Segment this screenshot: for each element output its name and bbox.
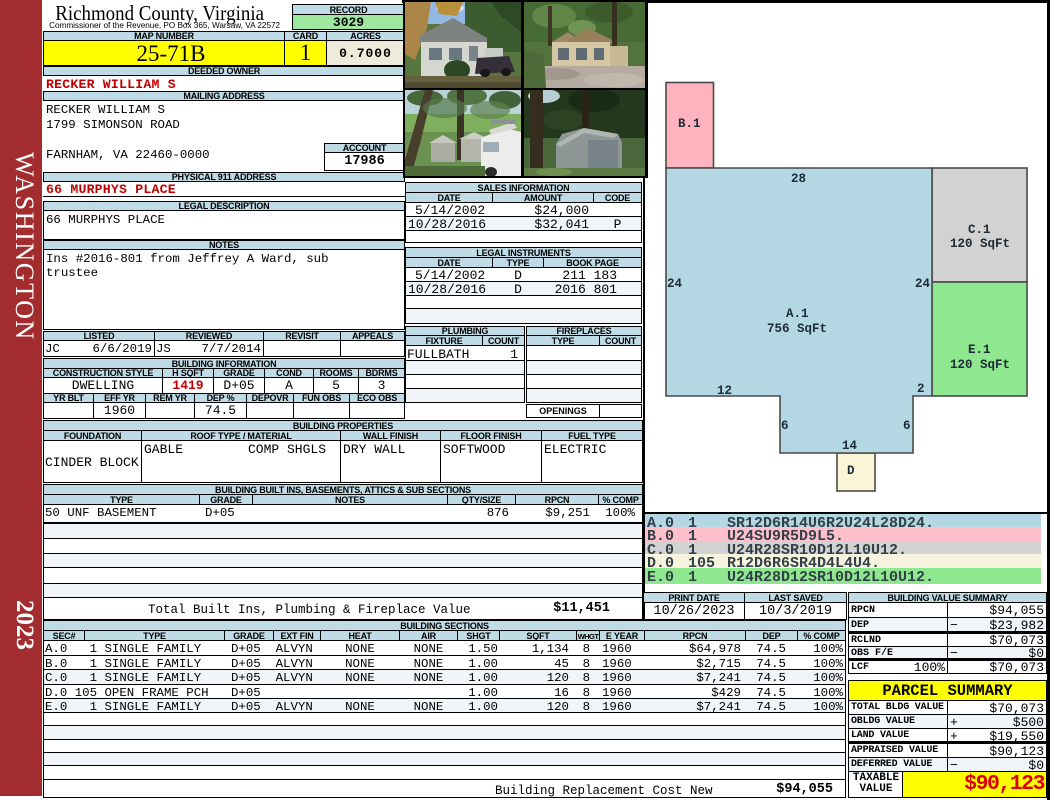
svg-text:A.1: A.1 (786, 307, 809, 321)
svg-text:28: 28 (791, 172, 806, 186)
svg-text:756 SqFt: 756 SqFt (767, 322, 827, 336)
svg-text:2: 2 (917, 382, 925, 396)
svg-text:24: 24 (667, 277, 683, 291)
svg-text:6: 6 (781, 419, 789, 433)
svg-text:D: D (847, 464, 855, 478)
svg-text:B.1: B.1 (678, 117, 701, 131)
svg-text:12: 12 (717, 384, 732, 398)
svg-text:120 SqFt: 120 SqFt (950, 358, 1010, 372)
svg-text:C.1: C.1 (968, 223, 991, 237)
svg-text:6: 6 (903, 419, 911, 433)
svg-text:120 SqFt: 120 SqFt (950, 237, 1010, 251)
svg-text:14: 14 (842, 439, 858, 453)
svg-text:24: 24 (915, 277, 931, 291)
svg-text:E.1: E.1 (968, 343, 991, 357)
